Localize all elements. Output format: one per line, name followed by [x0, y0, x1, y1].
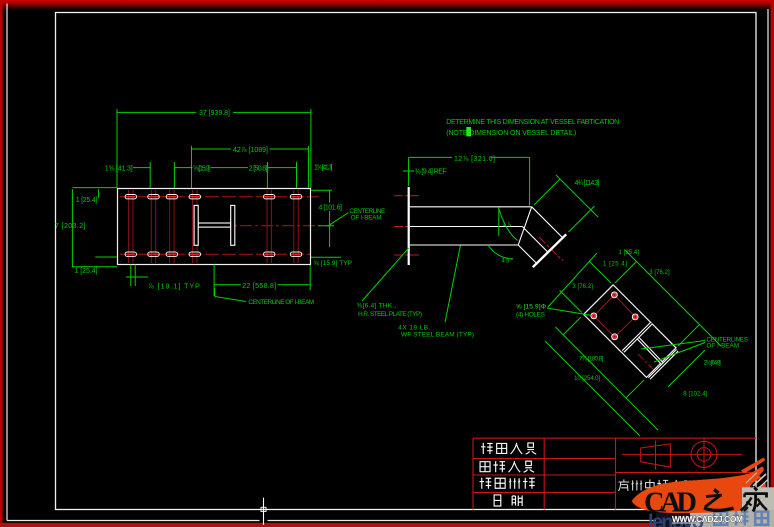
svg-text:WF STEEL BEAM (TYP): WF STEEL BEAM (TYP)	[401, 332, 474, 339]
svg-text:⅝ [15.9]Φ: ⅝ [15.9]Φ	[516, 304, 546, 311]
svg-text:4¾ [114.3]: 4¾ [114.3]	[575, 180, 600, 187]
svg-text:⅜[6.4] THK.,: ⅜[6.4] THK.,	[357, 303, 397, 310]
svg-text:⅞ [19.1] TYP: ⅞ [19.1] TYP	[148, 283, 200, 290]
svg-text:(4) HOLES: (4) HOLES	[516, 312, 546, 319]
svg-text:3 [76.2]: 3 [76.2]	[572, 284, 593, 290]
svg-text:7⅛ [180.8]: 7⅛ [180.8]	[579, 357, 603, 363]
svg-text:2 [50.8]: 2 [50.8]	[249, 165, 268, 172]
svg-text:(NOTE DIMENSION ON VESSEL DETA: (NOTE DIMENSION ON VESSEL DETAIL)	[446, 130, 576, 137]
svg-text:42⅞ [1089]: 42⅞ [1089]	[233, 147, 268, 154]
svg-text:1 [25.4]: 1 [25.4]	[76, 197, 98, 204]
svg-text:OF I-BEAM: OF I-BEAM	[351, 214, 382, 221]
svg-text:⅝ [15.9] TYP: ⅝ [15.9] TYP	[314, 260, 353, 267]
svg-text:45°: 45°	[502, 259, 514, 265]
svg-text:4X 19 LB.: 4X 19 LB.	[398, 325, 430, 332]
svg-text:37 [939.8]: 37 [939.8]	[199, 110, 230, 117]
svg-text:4 [101.6]: 4 [101.6]	[319, 205, 343, 212]
svg-text:H.R. STEEL PLATE (TYP): H.R. STEEL PLATE (TYP)	[358, 311, 422, 318]
svg-text:3 [76.2]: 3 [76.2]	[649, 270, 670, 276]
svg-text:DETERMINE THIS DIMENSION AT VE: DETERMINE THIS DIMENSION AT VESSEL FABTI…	[446, 119, 619, 126]
svg-text:1⅝ [41.3]: 1⅝ [41.3]	[314, 164, 333, 171]
svg-text:7 [203.2]: 7 [203.2]	[55, 223, 86, 230]
svg-text:CENTERLINE OF I-BEAM: CENTERLINE OF I-BEAM	[248, 299, 314, 306]
svg-text:1 [25.4]: 1 [25.4]	[603, 262, 627, 268]
svg-text:10 [254.0]: 10 [254.0]	[574, 376, 600, 382]
svg-text:WWW.CADZJ.COM: WWW.CADZJ.COM	[672, 514, 743, 524]
svg-text:8 [102.4]: 8 [102.4]	[683, 391, 707, 397]
svg-text:2½ [64.8]: 2½ [64.8]	[704, 360, 721, 367]
svg-text:12⅞ [321.6]: 12⅞ [321.6]	[454, 156, 495, 163]
svg-text:22 [558.8]: 22 [558.8]	[242, 283, 276, 290]
svg-text:1⅝ [41.3]: 1⅝ [41.3]	[105, 165, 133, 172]
svg-text:OF I-BEAM: OF I-BEAM	[707, 343, 740, 350]
svg-text:⅜ [9.4] REF: ⅜ [9.4] REF	[415, 169, 447, 176]
svg-text:⅝ [15.9]: ⅝ [15.9]	[193, 165, 210, 172]
svg-text:1 [25.4]: 1 [25.4]	[75, 268, 98, 275]
svg-text:1 [25.4]: 1 [25.4]	[619, 250, 640, 256]
